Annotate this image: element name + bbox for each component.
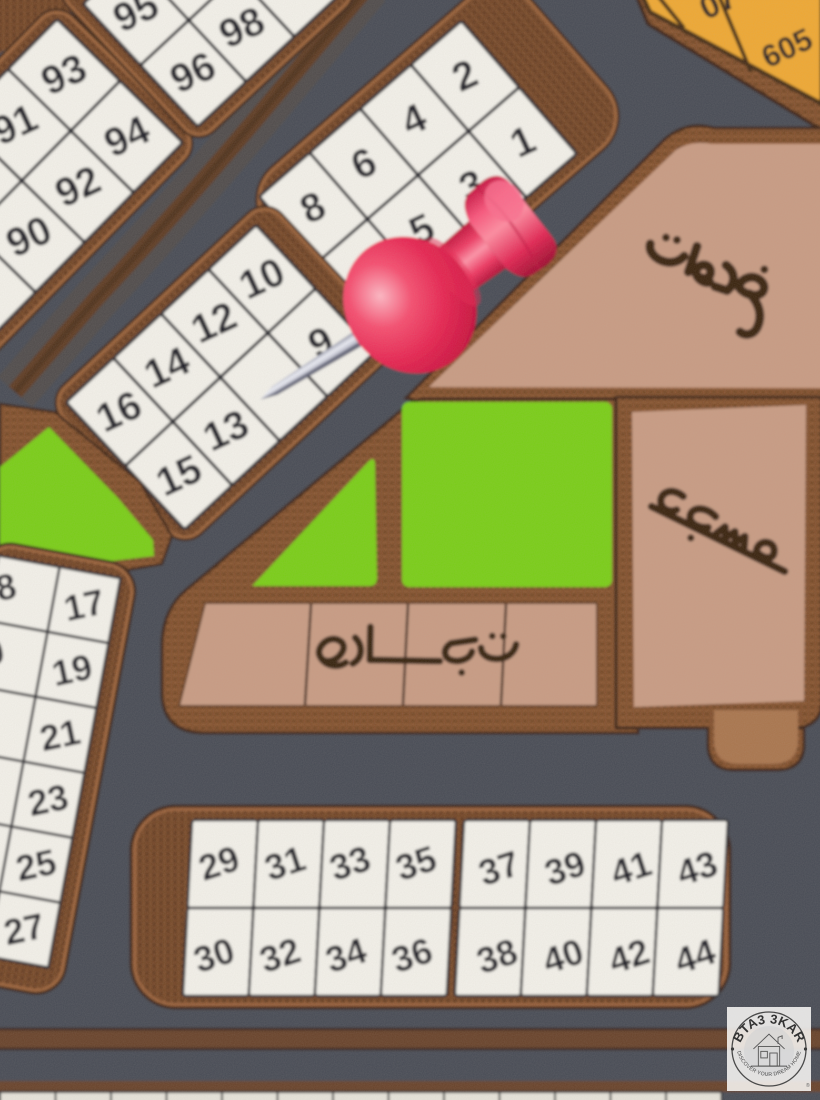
svg-text:®: ®: [806, 1082, 810, 1089]
